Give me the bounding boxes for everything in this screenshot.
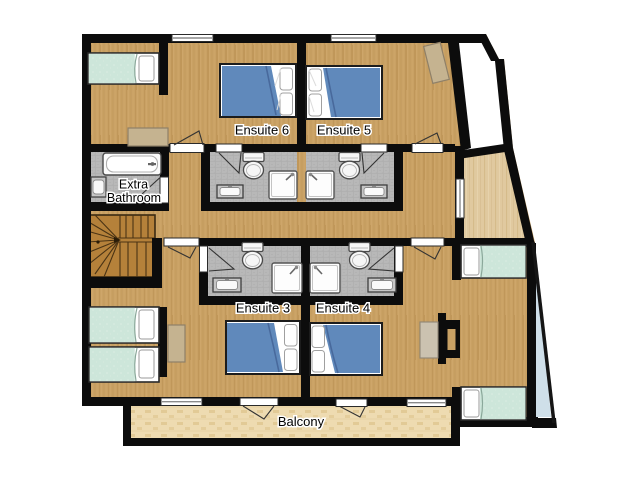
svg-text:Ensuite 6: Ensuite 6 — [235, 123, 289, 138]
svg-text:Balcony: Balcony — [278, 414, 325, 429]
svg-text:Bathroom: Bathroom — [107, 191, 161, 205]
svg-text:Extra: Extra — [119, 178, 148, 192]
svg-text:Ensuite 3: Ensuite 3 — [236, 301, 290, 316]
svg-text:Ensuite 5: Ensuite 5 — [317, 123, 371, 138]
svg-text:Ensuite 4: Ensuite 4 — [316, 301, 370, 316]
